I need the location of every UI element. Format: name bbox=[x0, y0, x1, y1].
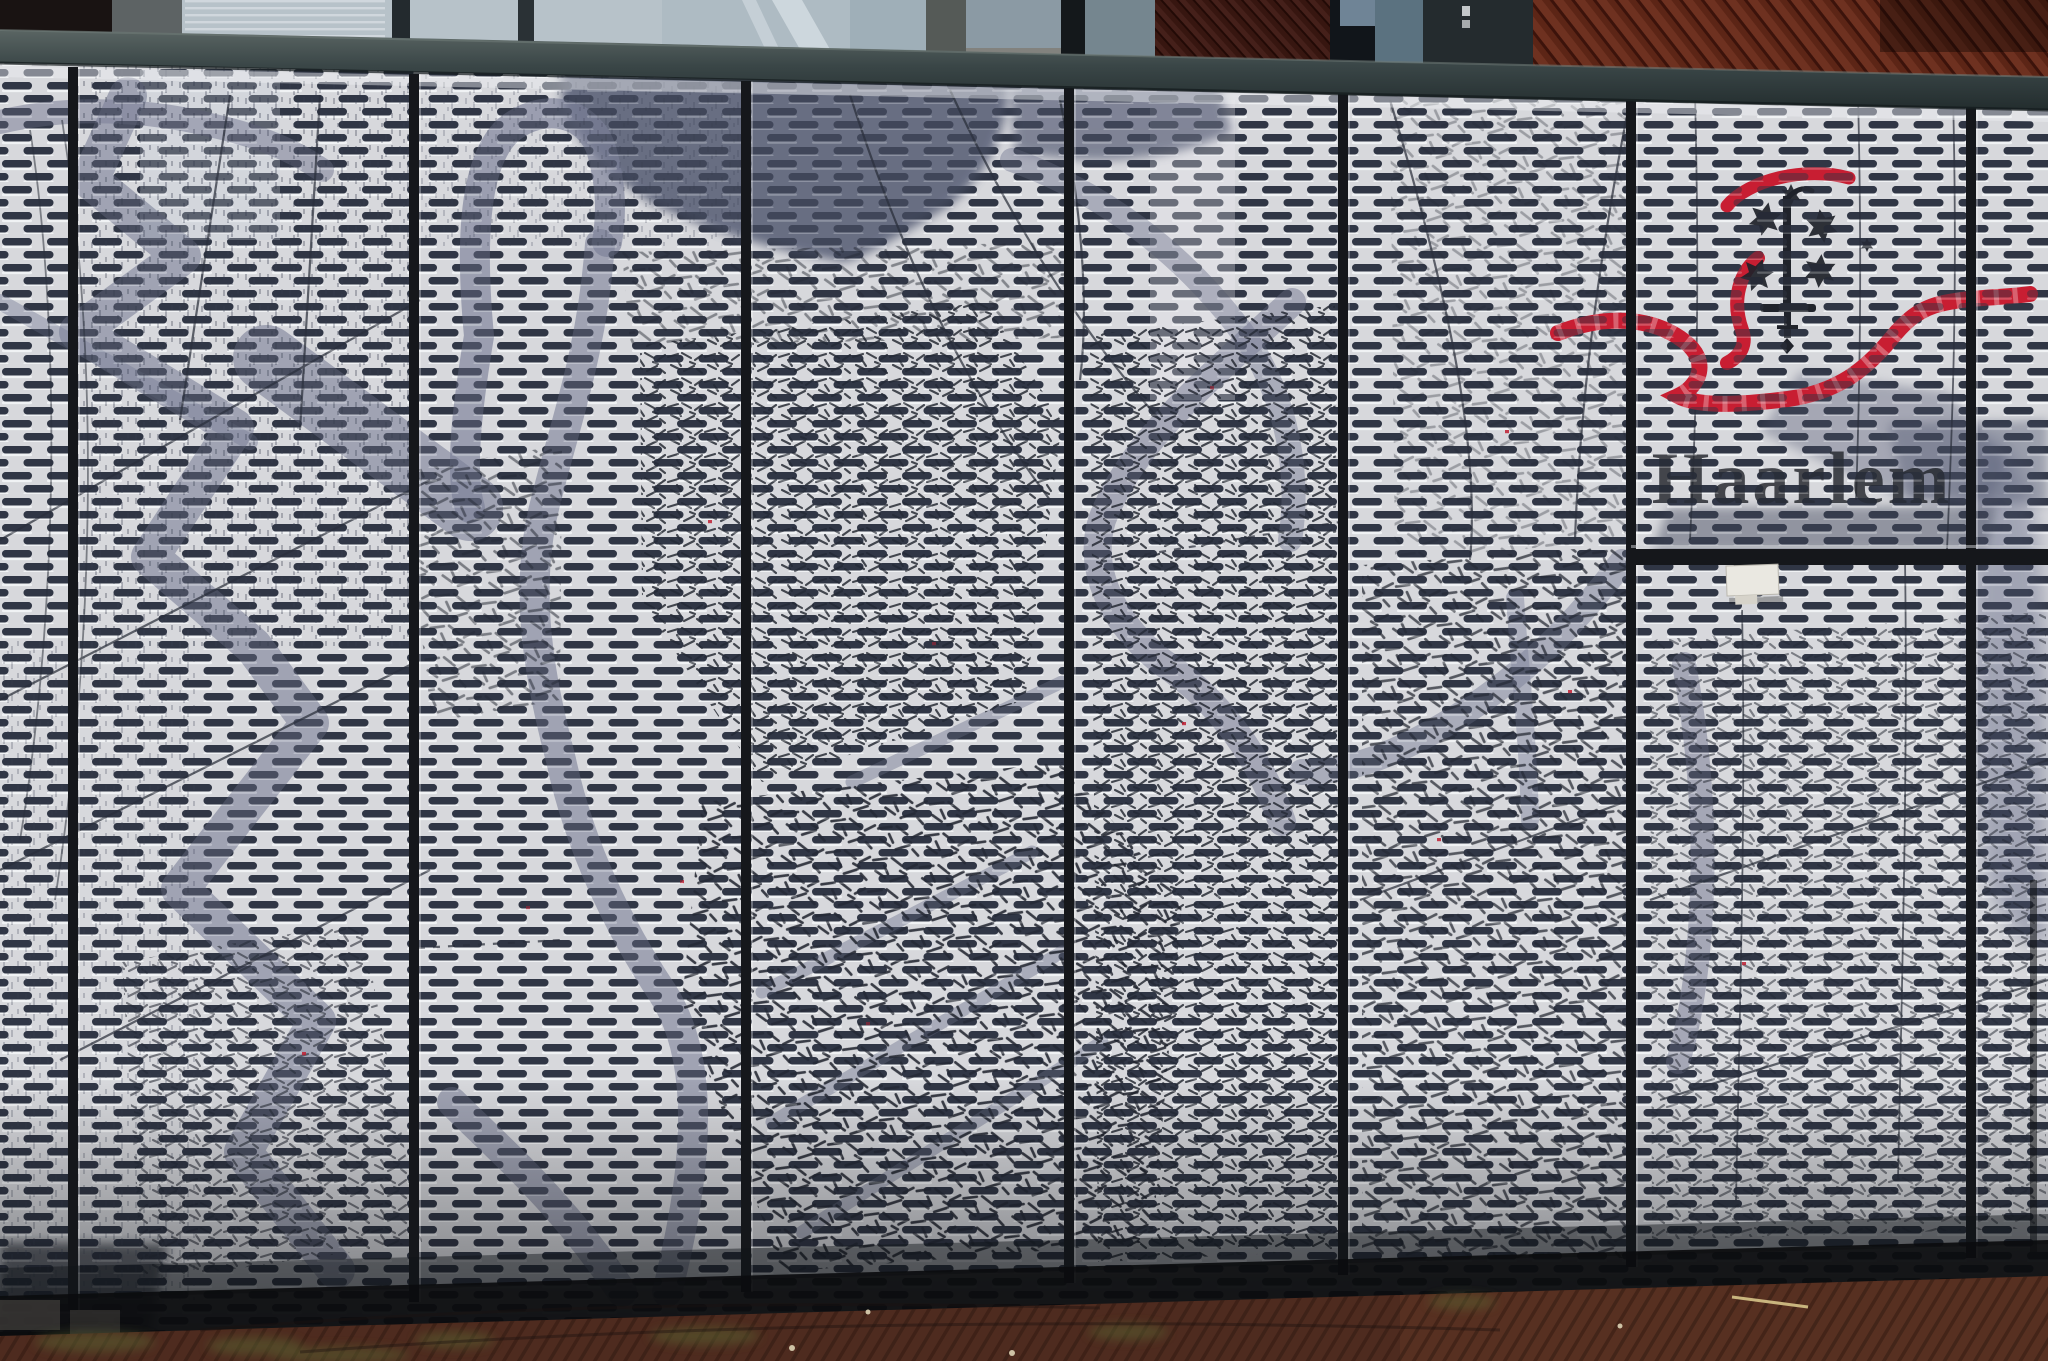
panel-seam bbox=[1966, 107, 1976, 1258]
door-horizontal-seam bbox=[1631, 549, 2048, 565]
panel-seam bbox=[68, 67, 78, 1310]
panel-seam bbox=[1626, 100, 1636, 1267]
window-latch-icon bbox=[1462, 6, 1470, 16]
curb-stone bbox=[0, 1300, 60, 1330]
window-latch-icon bbox=[1462, 20, 1470, 28]
door-seam-highlight bbox=[1631, 545, 2048, 548]
photo-haarlem-map-facade: Haarlem bbox=[0, 0, 2048, 1361]
door-edge bbox=[2030, 880, 2037, 1252]
brick-wall-shadow bbox=[1880, 0, 2048, 52]
panel-seam bbox=[741, 81, 751, 1292]
panel-seam bbox=[1064, 88, 1074, 1283]
latch-handle bbox=[1726, 564, 1783, 605]
panel-seam bbox=[1338, 94, 1348, 1275]
panel-seam bbox=[409, 74, 419, 1302]
